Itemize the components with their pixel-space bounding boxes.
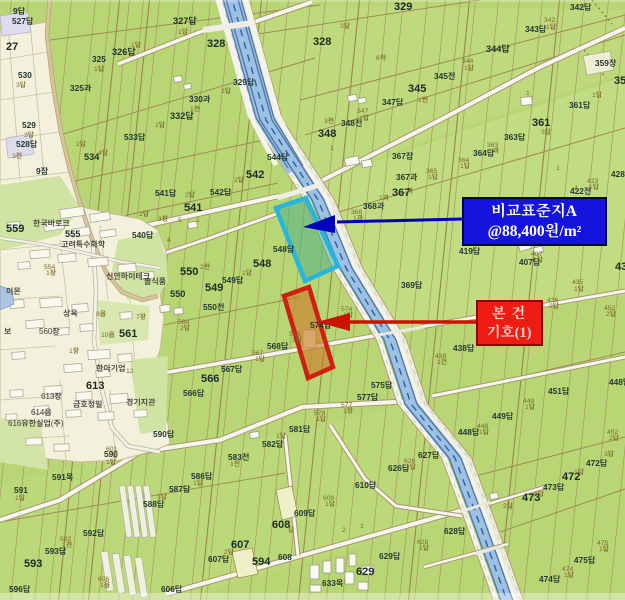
svg-text:592: 592	[83, 528, 97, 538]
svg-text:1: 1	[46, 270, 50, 277]
svg-text:2: 2	[609, 435, 613, 442]
svg-text:348: 348	[341, 118, 355, 128]
svg-text:4: 4	[98, 150, 102, 157]
svg-text:527: 527	[12, 16, 26, 26]
svg-text:329: 329	[233, 77, 247, 87]
svg-text:2: 2	[139, 211, 143, 218]
svg-text:614: 614	[31, 408, 45, 417]
svg-text:332: 332	[170, 111, 185, 121]
svg-text:1: 1	[343, 408, 347, 415]
svg-text:1: 1	[190, 106, 194, 113]
svg-text:566: 566	[183, 388, 197, 398]
svg-text:367: 367	[392, 187, 410, 199]
svg-text:1: 1	[406, 464, 410, 471]
svg-text:2: 2	[342, 527, 346, 534]
svg-text:364: 364	[473, 148, 487, 158]
svg-text:A: A	[566, 203, 578, 220]
svg-text:591: 591	[52, 472, 66, 482]
svg-text:591: 591	[14, 485, 28, 495]
svg-text:633: 633	[322, 578, 336, 588]
svg-text:1: 1	[379, 195, 383, 202]
svg-text:549: 549	[222, 275, 236, 285]
svg-text:1: 1	[564, 572, 568, 579]
svg-text:530: 530	[18, 70, 32, 80]
svg-text:582: 582	[262, 439, 276, 449]
svg-text:1: 1	[292, 337, 296, 344]
svg-text:1: 1	[526, 90, 530, 97]
svg-text:407: 407	[519, 257, 533, 267]
svg-text:587: 587	[169, 484, 183, 494]
svg-text:528: 528	[16, 139, 30, 149]
svg-text:1: 1	[574, 286, 578, 293]
svg-text:1: 1	[325, 501, 329, 508]
svg-text:3: 3	[604, 451, 608, 458]
svg-text:9: 9	[13, 6, 18, 16]
svg-text:12: 12	[126, 368, 134, 375]
svg-text:2: 2	[606, 311, 610, 318]
svg-text:1: 1	[533, 257, 537, 264]
svg-text:608: 608	[272, 519, 290, 531]
svg-text:448: 448	[609, 377, 623, 387]
svg-text:606: 606	[161, 584, 175, 594]
svg-text:359: 359	[595, 58, 609, 68]
svg-text:329: 329	[394, 1, 412, 13]
svg-text:1: 1	[178, 29, 182, 36]
svg-text:1: 1	[108, 452, 112, 459]
svg-text:327: 327	[173, 16, 188, 26]
svg-text:434: 434	[615, 261, 625, 273]
svg-text:616: 616	[8, 419, 22, 428]
svg-text:1: 1	[316, 416, 320, 423]
svg-text:472: 472	[586, 458, 600, 468]
svg-text:1: 1	[69, 348, 73, 355]
svg-text:548: 548	[253, 258, 271, 270]
svg-text:566: 566	[201, 373, 219, 385]
svg-text:550: 550	[170, 289, 185, 299]
svg-text:369: 369	[401, 280, 415, 290]
svg-text:1: 1	[534, 491, 538, 498]
svg-text:448: 448	[458, 427, 472, 437]
svg-text:1: 1	[460, 163, 464, 170]
svg-text:581: 581	[289, 424, 303, 434]
svg-text:542: 542	[246, 169, 264, 181]
svg-text:3: 3	[324, 118, 328, 125]
svg-text:588: 588	[143, 499, 157, 509]
svg-text:343: 343	[525, 24, 539, 34]
svg-text:567: 567	[221, 364, 235, 374]
svg-text:608: 608	[278, 552, 292, 562]
svg-text:1: 1	[131, 42, 135, 49]
svg-text:367: 367	[392, 151, 406, 161]
svg-text:4: 4	[167, 237, 171, 244]
svg-text:1: 1	[464, 65, 468, 72]
svg-text:613: 613	[86, 380, 104, 392]
svg-text:540: 540	[132, 230, 146, 240]
svg-text:344: 344	[462, 58, 474, 65]
svg-text:529: 529	[22, 120, 36, 130]
svg-text:1: 1	[589, 184, 593, 191]
svg-text:347: 347	[357, 108, 369, 115]
svg-text:342: 342	[570, 2, 584, 12]
svg-text:328: 328	[313, 36, 331, 48]
svg-text:610: 610	[355, 480, 369, 490]
svg-text:568: 568	[267, 341, 281, 351]
svg-text:555: 555	[65, 229, 80, 239]
svg-text:593: 593	[45, 546, 59, 556]
svg-text:451: 451	[548, 386, 562, 396]
svg-text:1: 1	[330, 145, 334, 152]
svg-text:3: 3	[541, 129, 545, 136]
svg-text:549: 549	[205, 282, 223, 294]
svg-text:1: 1	[360, 523, 364, 530]
svg-text:627: 627	[418, 450, 432, 460]
svg-text:1: 1	[419, 545, 423, 552]
svg-text:596: 596	[9, 584, 23, 594]
svg-text:435: 435	[572, 279, 584, 286]
svg-text:325: 325	[92, 54, 106, 64]
svg-text:1: 1	[230, 461, 234, 468]
svg-text:607: 607	[208, 554, 222, 564]
svg-text:326: 326	[112, 47, 127, 57]
svg-text:541: 541	[155, 188, 169, 198]
svg-text:548: 548	[273, 244, 287, 254]
svg-text:367: 367	[396, 172, 410, 182]
svg-text:345: 345	[408, 83, 426, 95]
svg-text:428: 428	[611, 169, 625, 179]
svg-text:1: 1	[242, 270, 246, 277]
svg-text:342: 342	[544, 17, 556, 24]
svg-text:1: 1	[100, 582, 104, 589]
svg-text:542: 542	[210, 187, 224, 197]
svg-text:613: 613	[41, 392, 55, 401]
svg-text:6: 6	[376, 55, 380, 62]
svg-text:3: 3	[24, 132, 28, 139]
svg-text:1: 1	[276, 433, 280, 440]
svg-text:1: 1	[437, 359, 441, 366]
svg-text:1: 1	[479, 429, 483, 436]
svg-text:629: 629	[356, 566, 374, 578]
svg-text:1: 1	[546, 24, 550, 31]
svg-text:9: 9	[36, 166, 41, 176]
svg-text:27: 27	[6, 41, 18, 53]
svg-text:561: 561	[119, 328, 137, 340]
svg-text:(1): (1)	[515, 325, 532, 341]
svg-text:5: 5	[178, 217, 182, 224]
svg-text:449: 449	[492, 411, 506, 421]
svg-text:560: 560	[39, 327, 53, 336]
svg-text:8: 8	[96, 311, 100, 318]
svg-text:2: 2	[549, 303, 553, 310]
svg-text:/m²: /m²	[558, 223, 581, 240]
svg-text:330: 330	[189, 94, 203, 104]
svg-text:629: 629	[379, 551, 393, 561]
svg-text:438: 438	[453, 343, 467, 353]
svg-text:628: 628	[444, 526, 458, 536]
svg-text:3: 3	[340, 23, 344, 30]
svg-text:607: 607	[231, 539, 249, 551]
svg-text:10: 10	[101, 332, 109, 339]
svg-text:575: 575	[371, 380, 385, 390]
svg-text:361: 361	[532, 117, 550, 129]
svg-text:1: 1	[196, 217, 200, 224]
svg-text:4: 4	[574, 185, 578, 192]
svg-text:361: 361	[569, 100, 583, 110]
svg-text:475: 475	[574, 555, 588, 565]
svg-text:474: 474	[539, 574, 553, 584]
svg-text:473: 473	[543, 482, 557, 492]
svg-text:577: 577	[357, 392, 371, 402]
svg-text:1: 1	[556, 165, 560, 172]
svg-text:328: 328	[207, 38, 225, 50]
svg-text:348: 348	[318, 128, 336, 140]
svg-text:1: 1	[62, 542, 66, 549]
svg-text:626: 626	[388, 463, 402, 473]
svg-text:1: 1	[418, 97, 422, 104]
svg-text:359: 359	[614, 75, 625, 87]
svg-text:347: 347	[382, 97, 396, 107]
svg-text:2: 2	[200, 264, 204, 271]
svg-text:325: 325	[70, 83, 84, 93]
svg-text:1: 1	[106, 459, 110, 466]
svg-text:363: 363	[504, 132, 518, 142]
svg-text:533: 533	[124, 132, 138, 142]
svg-text:1: 1	[193, 480, 197, 487]
svg-text:1: 1	[15, 495, 19, 502]
svg-text:1: 1	[255, 356, 259, 363]
svg-text:2: 2	[224, 549, 228, 556]
svg-text:2: 2	[185, 192, 189, 199]
svg-text:1: 1	[489, 148, 493, 155]
svg-text:3: 3	[16, 82, 20, 89]
svg-text:7: 7	[136, 314, 140, 321]
svg-text:345: 345	[434, 71, 448, 81]
svg-text:544: 544	[267, 152, 281, 162]
svg-text:368: 368	[363, 201, 377, 211]
svg-text:2: 2	[503, 503, 507, 510]
svg-text:3: 3	[12, 153, 16, 160]
svg-text:2: 2	[234, 177, 238, 184]
svg-text:1: 1	[221, 88, 225, 95]
svg-text:1: 1	[592, 92, 596, 99]
svg-text:2: 2	[76, 141, 80, 148]
svg-text:3: 3	[158, 216, 162, 223]
svg-text:559: 559	[6, 223, 24, 235]
svg-text:541: 541	[184, 202, 202, 214]
svg-text:@88,400: @88,400	[488, 223, 545, 240]
svg-text:419: 419	[459, 246, 473, 256]
svg-text:593: 593	[24, 558, 42, 570]
svg-text:550: 550	[180, 266, 198, 278]
svg-text:1: 1	[574, 469, 578, 476]
svg-text:2: 2	[180, 325, 184, 332]
svg-text:594: 594	[252, 556, 271, 568]
svg-text:1: 1	[428, 174, 432, 181]
svg-text:550: 550	[203, 302, 217, 312]
svg-text:344: 344	[486, 44, 502, 54]
svg-text:): )	[61, 419, 64, 428]
svg-text:1: 1	[94, 66, 98, 73]
svg-text:1: 1	[155, 122, 159, 129]
svg-text:(: (	[51, 419, 54, 428]
svg-text:1: 1	[359, 115, 363, 122]
svg-text:590: 590	[153, 429, 167, 439]
svg-text:1: 1	[157, 494, 161, 501]
svg-text:1: 1	[525, 404, 529, 411]
svg-text:1: 1	[599, 546, 603, 553]
svg-text:609: 609	[294, 508, 308, 518]
